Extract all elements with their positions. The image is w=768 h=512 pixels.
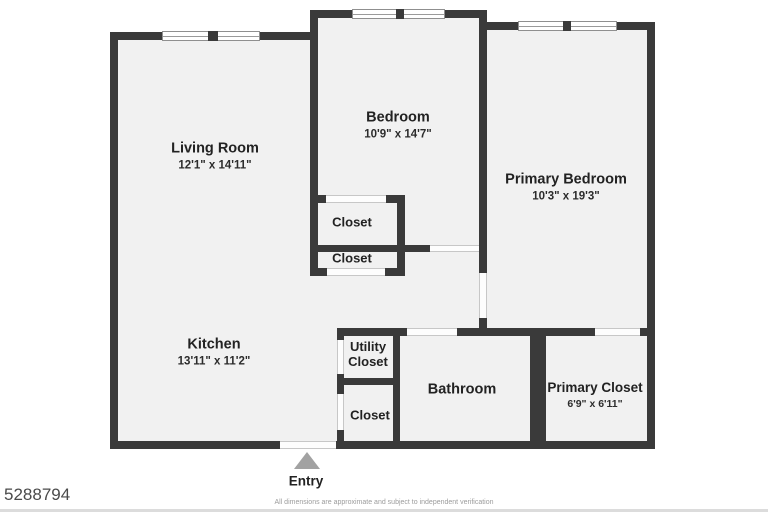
- closet-bottom-label: Closet: [350, 409, 390, 424]
- closet-lower-door-opening: [327, 268, 385, 276]
- window-mullion: [208, 31, 218, 41]
- room-name: Primary Bedroom: [505, 172, 627, 189]
- room-name: Living Room: [171, 141, 259, 158]
- wall-bedroom-left: [310, 10, 318, 203]
- bedroom-label: Bedroom 10'9" x 14'7": [364, 110, 432, 141]
- wall-utility-middle: [337, 378, 400, 385]
- bottom-closet-door-opening: [337, 394, 344, 430]
- entry-door-opening: [280, 441, 336, 449]
- living-room-window: [162, 31, 260, 41]
- wall-right: [647, 22, 655, 449]
- entry-label: Entry: [289, 474, 324, 489]
- room-name: Closet: [332, 252, 372, 267]
- room-name: Kitchen: [178, 337, 251, 354]
- bathroom-label: Bathroom: [428, 382, 496, 399]
- bedroom-window: [352, 9, 445, 19]
- disclaimer-text: All dimensions are approximate and subje…: [0, 499, 768, 506]
- wall-closet-left: [310, 195, 318, 276]
- closet-upper-door-opening: [326, 195, 386, 203]
- primary-closet-label: Primary Closet 6'9" x 6'11": [547, 380, 642, 410]
- wall-bottom: [110, 441, 655, 449]
- living-room-label: Living Room 12'1" x 14'11": [171, 141, 259, 172]
- kitchen-label: Kitchen 13'11" x 11'2": [178, 337, 251, 368]
- primary-bedroom-label: Primary Bedroom 10'3" x 19'3": [505, 172, 627, 203]
- closet-lower-label: Closet: [332, 252, 372, 267]
- window-mullion: [563, 21, 571, 31]
- room-dims: 10'3" x 19'3": [505, 190, 627, 202]
- room-name: Closet: [332, 216, 372, 231]
- wall-bath-closet-divider: [530, 336, 546, 449]
- room-dims: 13'11" x 11'2": [178, 355, 251, 367]
- bedroom-door-opening: [430, 245, 479, 252]
- primary-bedroom-door-opening: [479, 273, 487, 318]
- closet-upper-label: Closet: [332, 216, 372, 231]
- entry-arrow-icon: [294, 452, 320, 469]
- room-name: Bathroom: [428, 382, 496, 399]
- room-dims: 10'9" x 14'7": [364, 128, 432, 140]
- bathroom-door-opening: [407, 328, 457, 336]
- primary-bedroom-window: [518, 21, 617, 31]
- primary-closet-door-opening: [595, 328, 640, 336]
- wall-closet-right: [397, 195, 405, 276]
- room-name: Utility Closet: [336, 340, 400, 370]
- window-mullion: [396, 9, 404, 19]
- wall-left: [110, 32, 118, 449]
- room-name: Bedroom: [364, 110, 432, 127]
- room-dims: 6'9" x 6'11": [547, 398, 642, 410]
- room-name: Primary Closet: [547, 380, 642, 396]
- room-dims: 12'1" x 14'11": [171, 159, 259, 171]
- utility-closet-label: Utility Closet: [336, 340, 400, 370]
- wall-primary-left-upper: [479, 10, 487, 273]
- room-name: Closet: [350, 409, 390, 424]
